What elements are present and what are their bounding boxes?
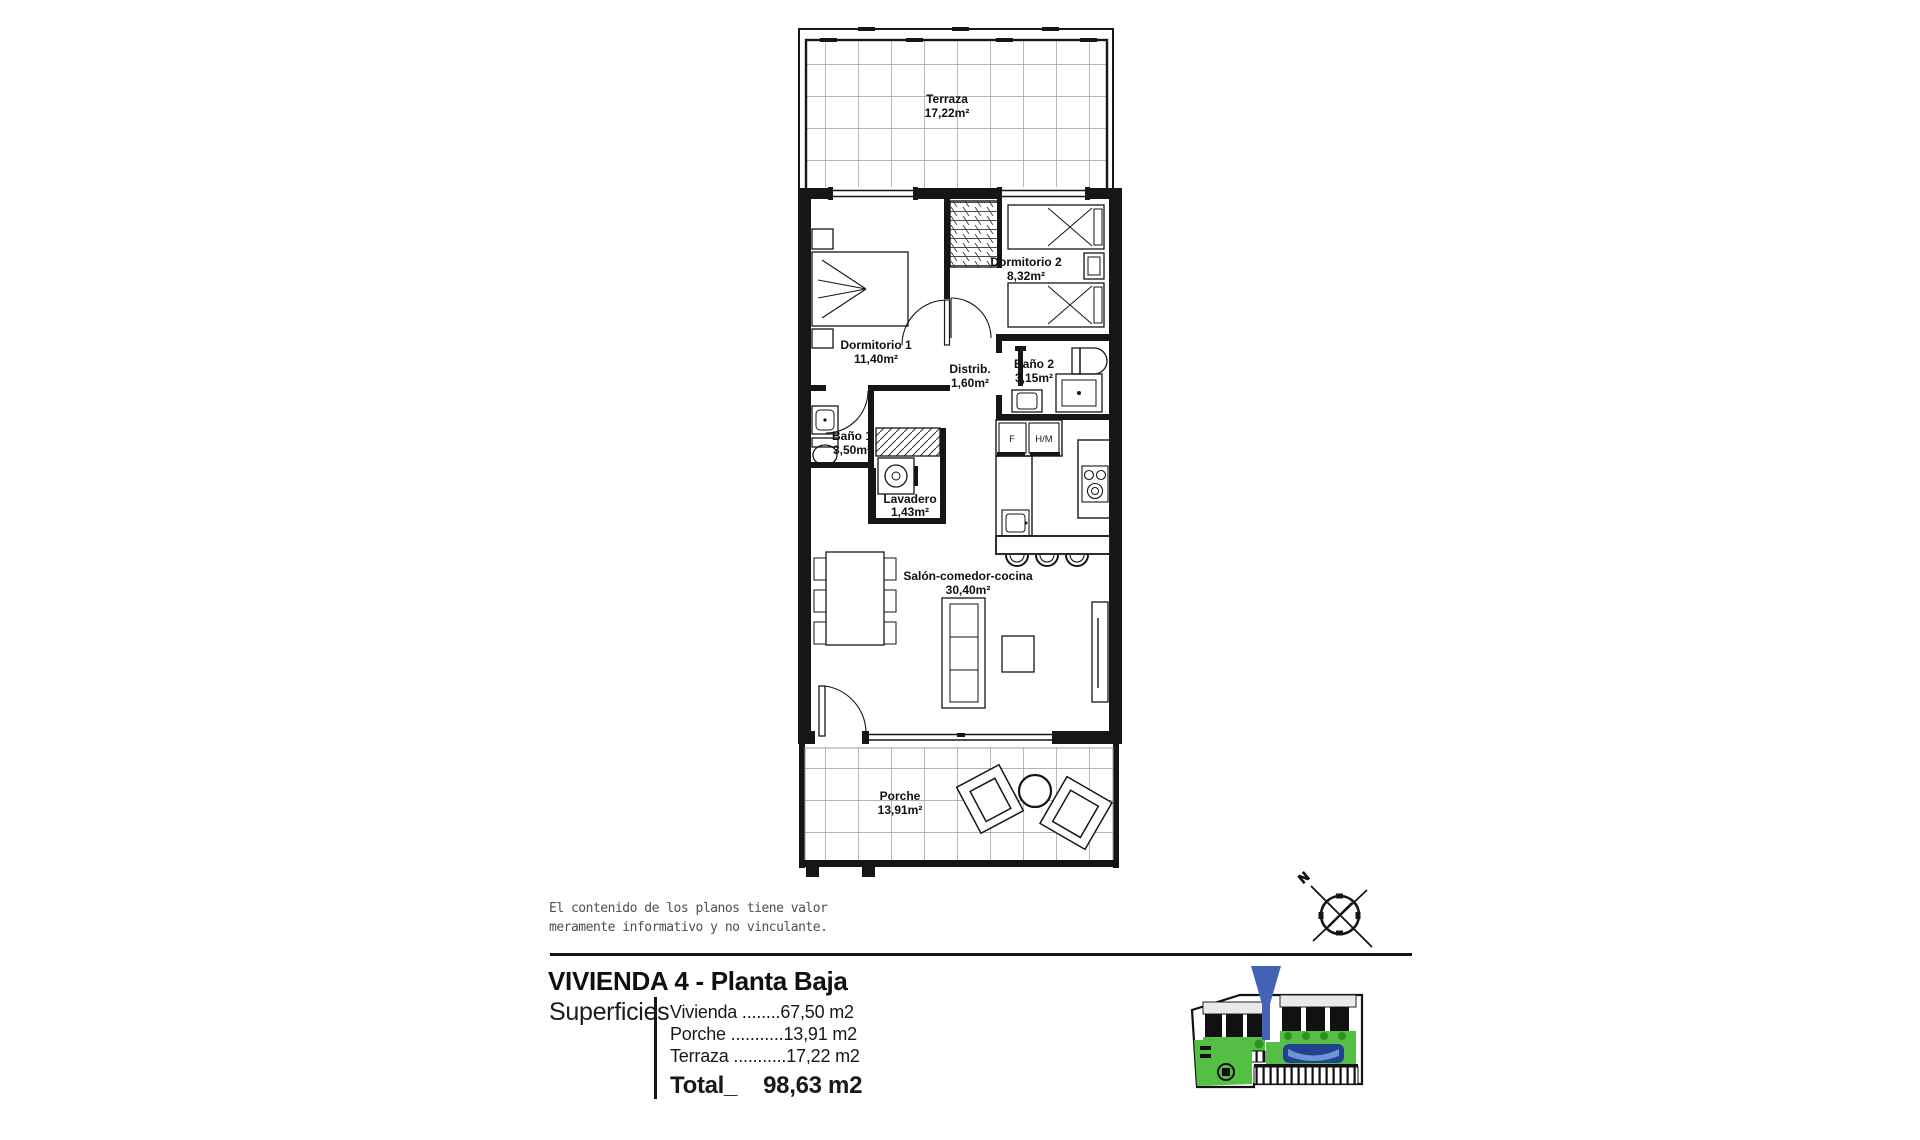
- row-label: Porche: [670, 1024, 726, 1044]
- divider-rule: [550, 953, 1412, 956]
- label-bano1-area: 3,50m²: [833, 443, 871, 457]
- label-lavadero-area: 1,43m²: [891, 505, 929, 519]
- bedroom-window-2: [997, 187, 1090, 200]
- label-oven-micro: H/M: [1035, 434, 1053, 445]
- superficies-row-vivienda: Vivienda ........67,50 m2: [670, 1003, 862, 1022]
- row-value: 13,91 m2: [783, 1024, 856, 1044]
- bedroom1-furniture: [812, 229, 908, 348]
- row-dots: ...........: [726, 1024, 784, 1044]
- label-bano2: Baño 2: [1014, 357, 1054, 371]
- label-dormitorio2-area: 8,32m²: [1007, 269, 1045, 283]
- label-bano1: Baño 1: [832, 429, 872, 443]
- label-dormitorio2: Dormitorio 2: [990, 255, 1062, 269]
- superficies-row-porche: Porche ...........13,91 m2: [670, 1025, 862, 1044]
- label-dormitorio1: Dormitorio 1: [840, 338, 912, 352]
- compass-rose: N: [1295, 869, 1372, 947]
- label-bano2-area: 3,15m²: [1015, 371, 1053, 385]
- laundry: [876, 428, 940, 494]
- row-value: 67,50 m2: [780, 1002, 853, 1022]
- page-title: VIVIENDA 4 - Planta Baja: [548, 966, 848, 997]
- entrance-door: [819, 686, 866, 736]
- label-distribuidor: Distrib.: [949, 362, 990, 376]
- label-salon: Salón-comedor-cocina: [903, 569, 1033, 583]
- superficies-row-terraza: Terraza ...........17,22 m2: [670, 1047, 862, 1066]
- floor-plan: Terraza 17,22m² Dormitorio 2 8,32m² Dorm…: [0, 0, 1920, 1140]
- label-lavadero: Lavadero: [883, 492, 936, 506]
- row-value: 17,22 m2: [786, 1046, 859, 1066]
- label-terraza-area: 17,22m²: [925, 106, 970, 120]
- superficies-divider: [654, 997, 657, 1099]
- disclaimer-line-2: meramente informativo y no vinculante.: [549, 918, 827, 937]
- site-plan-thumbnail: [1192, 966, 1362, 1087]
- porch-area: [799, 744, 1119, 877]
- label-dormitorio1-area: 11,40m²: [854, 352, 898, 366]
- porch-table: [1019, 775, 1051, 807]
- row-label: Terraza: [670, 1046, 729, 1066]
- disclaimer-line-1: El contenido de los planos tiene valor: [549, 899, 827, 918]
- label-fridge: F: [1009, 434, 1015, 445]
- label-distribuidor-area: 1,60m²: [951, 376, 989, 390]
- superficies-heading: Superficies: [549, 998, 669, 1027]
- disclaimer-text: El contenido de los planos tiene valor m…: [549, 899, 827, 937]
- total-label: Total_: [670, 1072, 737, 1099]
- label-terraza: Terraza: [926, 92, 968, 106]
- bedroom-window-1: [828, 187, 918, 200]
- superficies-table: Vivienda ........67,50 m2 Porche .......…: [670, 1003, 862, 1100]
- total-value: 98,63 m2: [763, 1072, 862, 1099]
- page: Terraza 17,22m² Dormitorio 2 8,32m² Dorm…: [0, 0, 1920, 1140]
- row-label: Vivienda: [670, 1002, 737, 1022]
- label-salon-area: 30,40m²: [946, 583, 991, 597]
- row-dots: ...........: [729, 1046, 787, 1066]
- north-icon: N: [1295, 869, 1312, 887]
- superficies-total: Total_98,63 m2: [670, 1072, 862, 1100]
- label-porche-area: 13,91m²: [878, 803, 923, 817]
- row-dots: ........: [737, 1002, 780, 1022]
- label-porche: Porche: [880, 789, 921, 803]
